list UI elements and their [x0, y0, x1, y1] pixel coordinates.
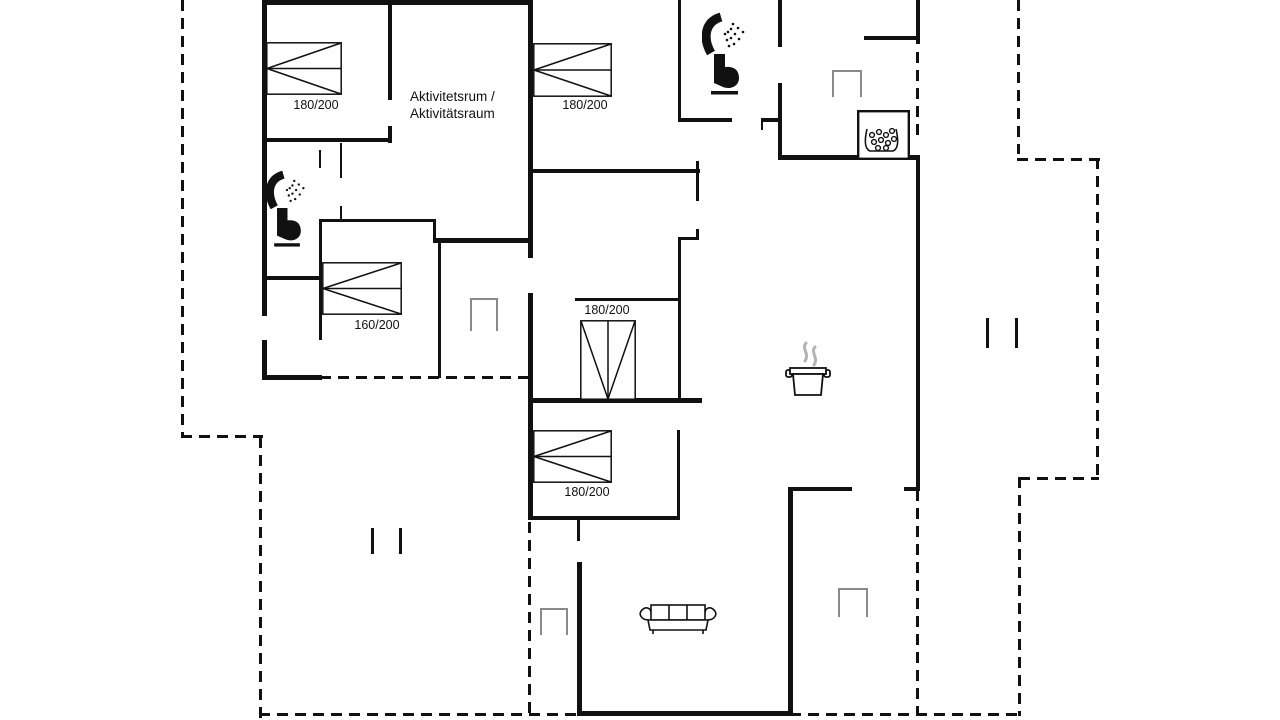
- wall-segment: [577, 516, 580, 541]
- boundary-tick: [399, 528, 402, 554]
- bed-size-label: 160/200: [354, 318, 399, 332]
- wall-segment: [340, 143, 342, 178]
- bed-size-label: 180/200: [562, 98, 607, 112]
- wall-segment: [788, 487, 852, 491]
- window-marker: [832, 70, 862, 97]
- wall-segment: [761, 118, 763, 130]
- double-bed: [580, 320, 636, 400]
- window-marker: [540, 608, 568, 635]
- window-marker: [470, 298, 498, 331]
- room-label-line2: Aktivitätsraum: [410, 105, 495, 122]
- terrace-boundary-dashed: [528, 522, 531, 716]
- boundary-tick: [371, 528, 374, 554]
- toilet-icon: [708, 54, 742, 96]
- wall-segment: [696, 161, 699, 201]
- wall-segment: [788, 487, 793, 716]
- wall-segment: [320, 219, 436, 222]
- wall-segment: [678, 237, 699, 240]
- terrace-boundary-dashed: [181, 0, 184, 437]
- terrace-boundary-dashed: [259, 713, 582, 716]
- room-label-line1: Aktivitetsrum /: [410, 88, 495, 105]
- terrace-boundary-dashed: [1017, 0, 1020, 154]
- toilet-icon: [271, 208, 304, 248]
- terrace-boundary-dashed: [320, 376, 530, 379]
- terrace-boundary-dashed: [916, 490, 919, 716]
- wall-segment: [388, 0, 392, 100]
- wall-segment: [577, 562, 582, 716]
- wall-segment: [916, 157, 920, 490]
- wall-segment: [530, 169, 700, 173]
- wall-segment: [262, 276, 322, 280]
- wall-segment: [319, 150, 321, 168]
- terrace-boundary-dashed: [1018, 477, 1021, 716]
- bed-size-label: 180/200: [293, 98, 338, 112]
- terrace-boundary-dashed: [790, 713, 1020, 716]
- wall-segment: [577, 711, 793, 716]
- wall-segment: [262, 0, 533, 5]
- wall-segment: [678, 118, 732, 122]
- floor-plan: Aktivitetsrum / Aktivitätsraum 180/200 1…: [0, 0, 1280, 720]
- wall-segment: [529, 516, 680, 520]
- wall-segment: [262, 138, 392, 142]
- bed-size-label: 180/200: [564, 485, 609, 499]
- wall-segment: [864, 36, 918, 40]
- terrace-boundary-dashed: [1096, 158, 1099, 480]
- terrace-boundary-dashed: [181, 435, 263, 438]
- double-bed: [266, 42, 342, 95]
- wall-segment: [433, 238, 533, 243]
- double-bed: [322, 262, 402, 315]
- terrace-boundary-dashed: [916, 52, 919, 137]
- shower-icon: [266, 170, 308, 210]
- stove-icon: [857, 110, 910, 160]
- wall-segment: [575, 298, 680, 301]
- wall-segment: [761, 118, 780, 122]
- boundary-tick: [1015, 318, 1018, 348]
- wall-segment: [677, 430, 680, 520]
- double-bed: [533, 43, 612, 97]
- room-label-activity: Aktivitetsrum / Aktivitätsraum: [410, 88, 495, 122]
- sofa-icon: [637, 602, 719, 638]
- bed-size-label: 180/200: [584, 303, 629, 317]
- wall-segment: [528, 0, 533, 258]
- wall-segment: [528, 293, 533, 520]
- wall-segment: [778, 0, 782, 47]
- shower-icon: [702, 12, 748, 56]
- wall-segment: [438, 240, 441, 378]
- double-bed: [533, 430, 612, 483]
- terrace-boundary-dashed: [1017, 158, 1100, 161]
- boundary-tick: [986, 318, 989, 348]
- wall-segment: [678, 237, 681, 402]
- wall-segment: [678, 0, 681, 122]
- wall-segment: [262, 340, 267, 380]
- terrace-boundary-dashed: [1019, 477, 1099, 480]
- terrace-boundary-dashed: [259, 437, 262, 718]
- wall-segment: [262, 375, 322, 380]
- cooking-pot-icon: [785, 340, 831, 398]
- window-marker: [838, 588, 868, 617]
